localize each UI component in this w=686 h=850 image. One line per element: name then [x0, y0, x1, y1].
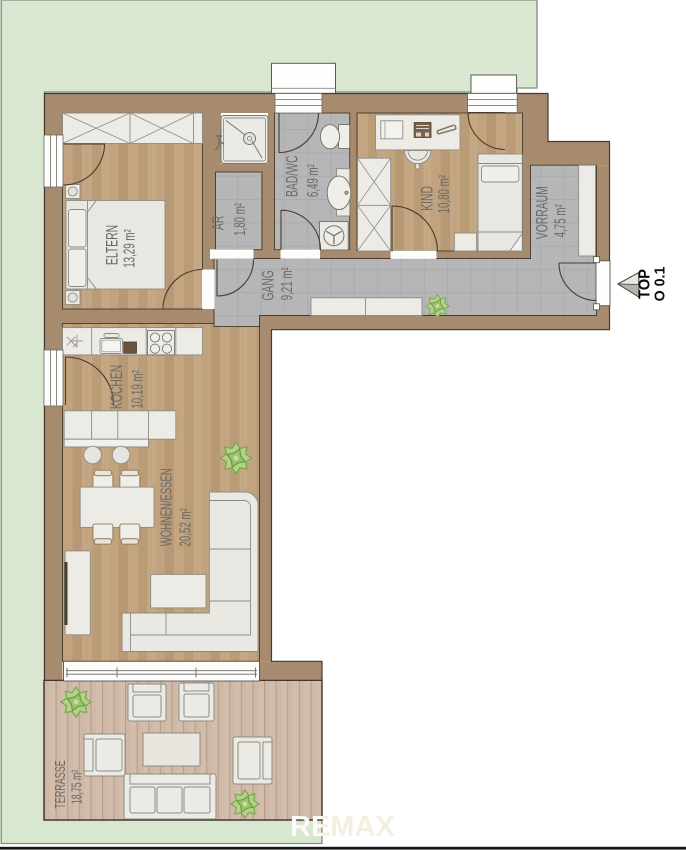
svg-text:4,75 m²: 4,75 m²: [551, 204, 569, 238]
svg-text:KIND: KIND: [418, 186, 436, 211]
svg-text:TERRASSE: TERRASSE: [51, 760, 68, 808]
svg-text:GANG: GANG: [259, 270, 277, 301]
svg-text:1,80 m²: 1,80 m²: [231, 202, 249, 236]
svg-text:20,52 m²: 20,52 m²: [176, 508, 194, 547]
svg-text:10,80 m²: 10,80 m²: [435, 174, 453, 213]
svg-text:6,49 m²: 6,49 m²: [304, 164, 322, 198]
svg-text:10,19 m²: 10,19 m²: [128, 370, 146, 409]
svg-text:BAD/WC: BAD/WC: [283, 156, 301, 198]
svg-text:18,75 m²: 18,75 m²: [68, 770, 85, 804]
svg-text:AR: AR: [209, 216, 227, 230]
svg-text:13,29 m²: 13,29 m²: [120, 229, 138, 268]
svg-text:TOP: TOP: [636, 269, 653, 299]
svg-text:O 0.1: O 0.1: [652, 267, 668, 302]
svg-text:VORRAUM: VORRAUM: [533, 186, 551, 239]
svg-text:KOCHEN: KOCHEN: [108, 365, 126, 409]
svg-text:9,21 m²: 9,21 m²: [278, 267, 296, 301]
svg-text:ELTERN: ELTERN: [103, 225, 121, 265]
svg-text:WOHNEN/ESSEN: WOHNEN/ESSEN: [157, 468, 175, 546]
